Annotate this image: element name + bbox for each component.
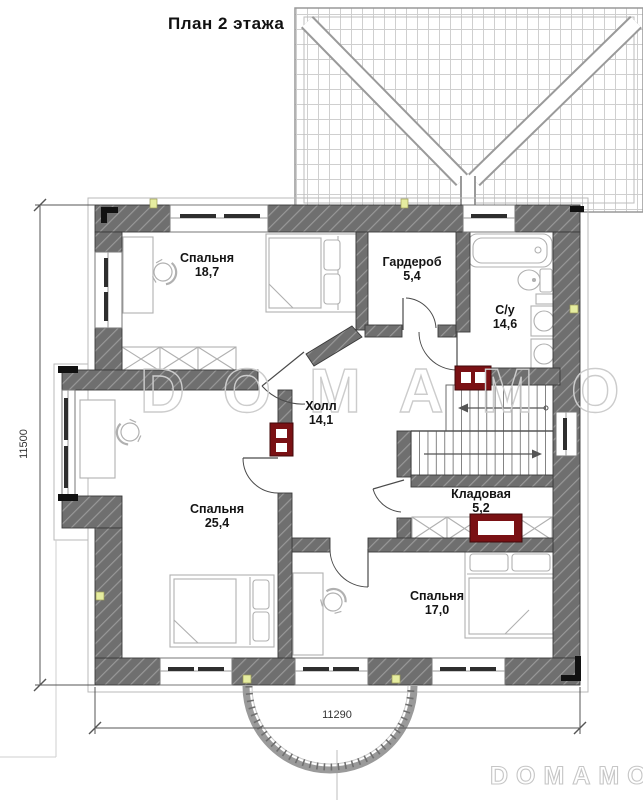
- room-label-hall: Холл 14,1: [305, 399, 336, 428]
- staircase: [411, 385, 558, 477]
- room-label-wardrobe: Гардероб 5,4: [382, 255, 441, 284]
- bathtub: [468, 234, 552, 267]
- radiator: [270, 423, 293, 456]
- wardrobe-cabinets: [122, 347, 236, 371]
- door-bathroom: [419, 332, 457, 370]
- window: [95, 252, 122, 328]
- wall-stair-left: [397, 431, 411, 477]
- wall-hall-bottom: [292, 538, 330, 552]
- wall-bedroom1-wardrobe: [356, 232, 368, 330]
- room-name: Кладовая: [451, 487, 511, 501]
- room-area: 14,6: [493, 317, 517, 331]
- wall-wardrobe-bottom-right: [438, 325, 456, 337]
- wall-bedroom1-bottom: [62, 370, 258, 390]
- room-area: 18,7: [180, 265, 234, 279]
- double-bed: [465, 550, 557, 638]
- wall-bedrooms-divider: [278, 493, 292, 658]
- window: [170, 205, 268, 232]
- toilet: [518, 269, 552, 292]
- double-bed: [266, 234, 356, 312]
- room-name: Спальня: [410, 589, 464, 603]
- window: [295, 658, 368, 685]
- room-name: Гардероб: [382, 255, 441, 269]
- roof-plan: [295, 8, 643, 212]
- window: [432, 658, 505, 685]
- double-bed: [170, 575, 274, 647]
- wall-wardrobe-bottom-left: [365, 325, 402, 337]
- radiator: [470, 514, 522, 542]
- floor-plan-page: DOMAMO DOMAMO План 2 этажа Спальня 18,7 …: [0, 0, 643, 800]
- room-area: 5,2: [451, 501, 511, 515]
- room-label-bathroom: С/у 14,6: [493, 303, 517, 332]
- door-bedroom2: [243, 458, 278, 493]
- room-label-bedroom1: Спальня 18,7: [180, 251, 234, 280]
- wall-chamfer: [306, 326, 362, 366]
- wall-storage-bottom: [368, 538, 553, 552]
- door-storage: [373, 480, 404, 512]
- door-wardrobe: [403, 298, 436, 330]
- room-area: 5,4: [382, 269, 441, 283]
- door-bedroom3: [330, 549, 368, 587]
- page-title: План 2 этажа: [168, 14, 284, 34]
- room-area: 25,4: [190, 516, 244, 530]
- room-name: С/у: [493, 303, 517, 317]
- office-chair-icon: [113, 418, 142, 448]
- desk: [80, 400, 115, 478]
- window: [160, 658, 232, 685]
- dimension-height: 11500: [18, 414, 30, 474]
- desk: [123, 237, 153, 313]
- dimension-width: 11290: [322, 709, 352, 721]
- wall-storage-top: [411, 475, 553, 487]
- room-label-bedroom2: Спальня 25,4: [190, 502, 244, 531]
- room-area: 17,0: [410, 603, 464, 617]
- wall-storage-left: [397, 518, 411, 540]
- window: [556, 412, 577, 456]
- room-name: Спальня: [190, 502, 244, 516]
- radiator: [455, 366, 491, 390]
- office-chair-icon: [151, 258, 179, 287]
- shelf: [536, 294, 554, 304]
- desk: [293, 573, 323, 655]
- window-bay: [62, 390, 75, 496]
- room-name: Холл: [305, 399, 336, 413]
- room-name: Спальня: [180, 251, 234, 265]
- room-label-bedroom3: Спальня 17,0: [410, 589, 464, 618]
- window: [463, 205, 515, 232]
- wall-wardrobe-bathroom: [456, 232, 470, 332]
- room-label-storage: Кладовая 5,2: [451, 487, 511, 516]
- room-area: 14,1: [305, 413, 336, 427]
